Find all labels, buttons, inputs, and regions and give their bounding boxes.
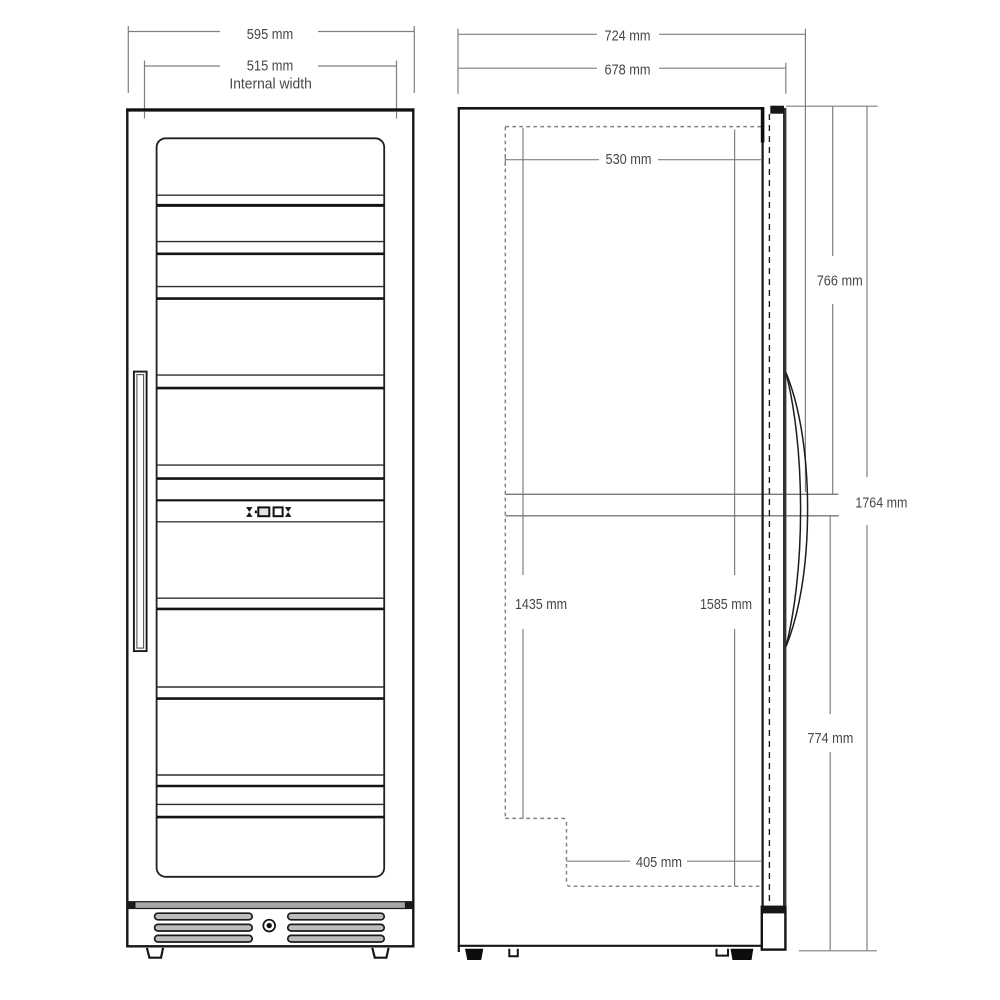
svg-text:724 mm: 724 mm (605, 28, 651, 45)
svg-text:530 mm: 530 mm (606, 151, 652, 168)
svg-text:Internal width: Internal width (229, 76, 312, 92)
svg-text:595 mm: 595 mm (247, 26, 294, 43)
svg-text:1435 mm: 1435 mm (515, 596, 567, 613)
svg-text:515 mm: 515 mm (247, 58, 294, 75)
svg-text:678 mm: 678 mm (605, 62, 651, 79)
svg-text:766 mm: 766 mm (817, 272, 863, 289)
svg-text:1585 mm: 1585 mm (700, 596, 752, 613)
svg-text:1764 mm: 1764 mm (855, 495, 907, 512)
svg-text:405 mm: 405 mm (636, 854, 682, 871)
svg-text:774 mm: 774 mm (807, 730, 853, 747)
